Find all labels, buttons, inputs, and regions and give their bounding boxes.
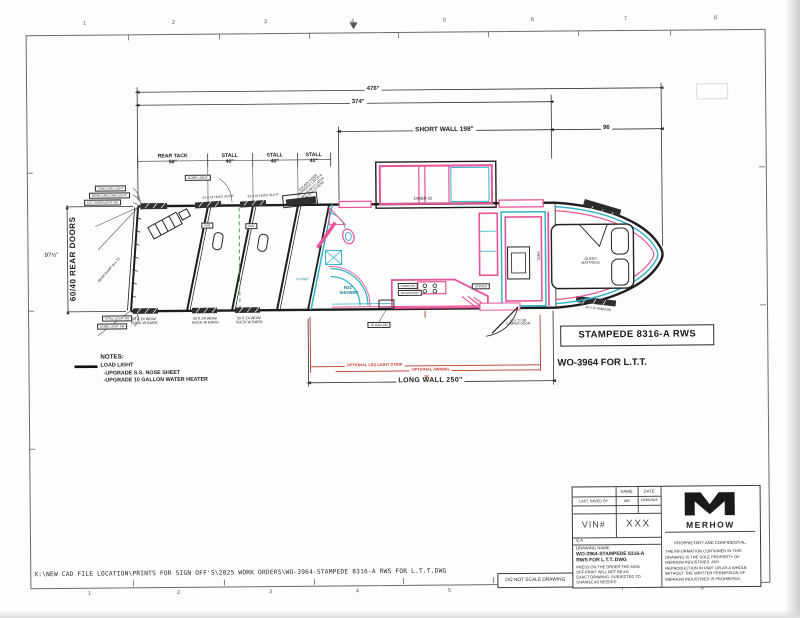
dome-light-label: DOME LIGHT <box>185 175 211 182</box>
merhow-logo-icon <box>683 489 738 519</box>
optional-awning-label: OPTIONAL AWNING <box>410 367 452 372</box>
rear-tack-label: REAR TACK 56" <box>158 154 188 165</box>
stall-window-label: 30 X 24 WDW. HUCK W BARS <box>236 316 263 324</box>
note-item: -UPGRADE S.S. NOSE SHEET <box>104 370 181 376</box>
vin-label: VIN# <box>582 520 606 530</box>
scale-number: 4 <box>356 589 359 595</box>
slide-out-label: DINER-22 <box>414 197 432 201</box>
scale-number: 6 <box>531 18 534 24</box>
camper-door-line2: CAMPER DOOR <box>506 323 530 327</box>
stall-label-2: STALL 40" <box>266 153 282 164</box>
sofa-label: SOFA <box>538 251 542 260</box>
do-not-scale-box: DO NOT SCALE DRAWING <box>497 572 573 588</box>
scan-edge-bottom <box>0 610 800 618</box>
dim-rear-height: 97½" <box>43 253 61 260</box>
cooktop-label: COOKTOP <box>398 283 418 289</box>
dim-long-wall: LONG WALL 250" <box>396 377 464 385</box>
drawing-name-label: DRAWING NAME: <box>576 546 611 551</box>
proprietary-line: MERHOW INDUSTRIES. ANY <box>665 560 719 565</box>
light-switch-label: EXT. WORKLIGHT SW <box>84 199 121 206</box>
scale-number: 3 <box>264 20 267 26</box>
last-saved-by-label: LAST SAVED BY <box>579 499 608 503</box>
vin-value: XXX <box>626 519 651 530</box>
ten-gallon-label: 10 GALLON <box>367 322 390 329</box>
stall-window-line2: HUCK W BARS <box>131 321 158 325</box>
scale-number: 4 <box>351 19 354 25</box>
dim-short-wall: SHORT WALL 198" <box>413 126 476 134</box>
shower-line2: SHOWER <box>339 290 358 295</box>
stall-label-1: STALL 40" <box>221 154 237 165</box>
col-date-header: DATE <box>644 489 655 494</box>
fan-label: FAN <box>245 223 257 229</box>
proprietary-title: PROPRIETARY AND CONFIDENTIAL. <box>674 541 746 546</box>
dim-nose: 96 <box>601 125 612 132</box>
shower-label: R32" SHOWER <box>339 286 358 295</box>
disclaimer-line: CHANGE AS NEEDED <box>576 580 616 585</box>
do-not-scale-text: DO NOT SCALE DRAWING <box>505 577 565 583</box>
stall-window-line2: HUCK W BARS <box>236 320 263 324</box>
queen-mattress-label: QUEEN MATTRESS <box>581 258 599 266</box>
rear-doors-label: 60/40 REAR DOORS <box>69 217 78 302</box>
scale-number: 1 <box>83 22 86 28</box>
centerline-dashed <box>239 207 240 309</box>
closet-label: CLOSET <box>296 278 309 282</box>
stall-size: 40" <box>306 159 322 165</box>
stall-window-label: 30 X 24 WDW. HUCK W BARS <box>192 316 219 324</box>
stall-pads <box>212 232 269 253</box>
scale-number: 5 <box>448 589 451 595</box>
merhow-brand-text: MERHOW <box>686 521 735 531</box>
light-switch-label: DOME LIGHT SW <box>97 323 127 329</box>
awning-length-label: 16' <box>424 374 429 378</box>
saved-date-value: 10/30/2025 <box>641 498 658 502</box>
model-callout-text: STAMPEDE 8316-A RWS <box>578 330 696 341</box>
light-switch-label: REAR CAM LOAD LIGHT <box>89 192 130 199</box>
scale-number: 7 <box>624 17 627 23</box>
light-switch-label: CAM LOAD LIGHT <box>95 185 126 192</box>
dim-floor: 374" <box>350 99 367 106</box>
scale-number: 2 <box>172 21 175 27</box>
work-order-text: WO-3964 FOR L.T.T. <box>557 358 646 369</box>
title-block: NAME DATE LAST SAVED BY AM 10/30/2025 VI… <box>572 485 762 589</box>
col-name-header: NAME <box>621 489 633 494</box>
stall-size: 40" <box>222 159 238 165</box>
stall-window-label: 30 X 24 WDW. HUCK W BARS <box>131 317 158 325</box>
model-callout-box: STAMPEDE 8316-A RWS <box>560 324 714 346</box>
qa-label: Q.A. <box>576 538 584 542</box>
queen-line2: MATTRESS <box>581 261 599 265</box>
scanned-drawing-page: 1 2 3 4 5 6 7 8 1 2 3 4 5 7 8 <box>0 0 800 618</box>
scale-number: 5 <box>443 19 446 25</box>
micro-label: MICRO/CONV <box>398 290 422 296</box>
scan-edge-right <box>784 0 800 618</box>
scale-number: 3 <box>269 590 272 596</box>
scale-number: 1 <box>88 592 91 598</box>
scale-number: 2 <box>177 591 180 597</box>
drawing-name-line2: RWS FOR L.T.T..DWG <box>576 558 627 564</box>
stall-window-line2: HUCK W BARS <box>192 321 219 325</box>
stall-label-3: STALL 40" <box>305 153 321 164</box>
scale-number: 8 <box>714 16 717 22</box>
stall-size: 40" <box>267 159 283 165</box>
rear-tack-size: 56" <box>158 160 188 166</box>
saved-name-value: AM <box>624 498 630 502</box>
drawing-sheet: 1 2 3 4 5 6 7 8 1 2 3 4 5 7 8 <box>0 0 800 618</box>
note-item: LOAD LIGHT <box>100 363 133 369</box>
fan-label: FAN <box>201 223 213 229</box>
camper-door-label: 66 X 72 3/8 CAMPER DOOR <box>506 319 530 326</box>
dim-overall: 476" <box>365 86 382 93</box>
notes-heading: NOTES: <box>100 354 123 361</box>
note-item: -UPGRADE 10 GALLON WATER HEATER <box>104 378 208 385</box>
proprietary-line: MERHOW INDUSTRIES IS PROHIBITED. <box>665 577 741 582</box>
optional-led-label: OPTIONAL LED LIGHT STRIP <box>345 363 405 368</box>
light-switch-label: STALL LIGHT SW <box>102 315 132 321</box>
saddle-rack <box>148 207 192 239</box>
stereo-label: STEREO <box>472 283 490 289</box>
